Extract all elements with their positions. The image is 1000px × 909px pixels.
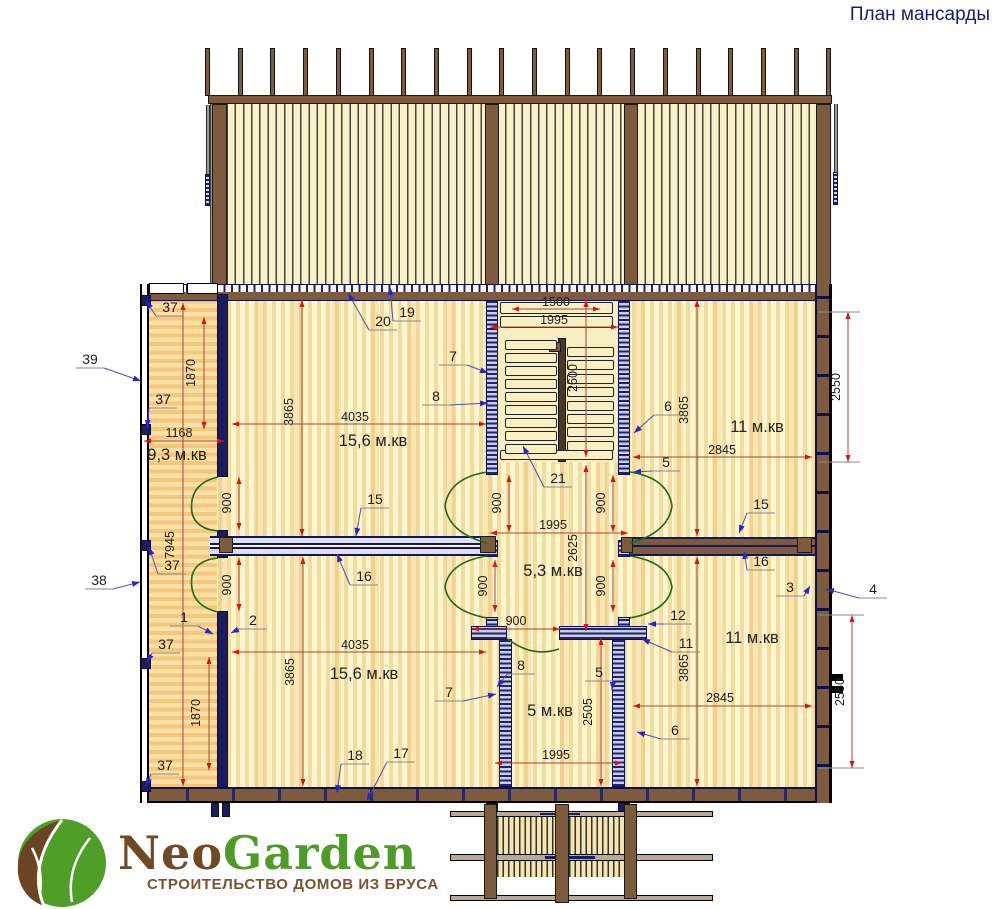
stair-landing-slat bbox=[500, 302, 613, 314]
room-strip-floor bbox=[149, 294, 217, 788]
attic-floor-plan-page: План мансарды bbox=[0, 0, 1000, 909]
rafter-top bbox=[761, 48, 766, 96]
left-wall-post bbox=[141, 295, 151, 306]
stair-tread bbox=[567, 414, 614, 424]
rafter-below bbox=[834, 104, 838, 172]
balcony-rail-dash bbox=[545, 856, 595, 859]
stairwell-right-wall bbox=[618, 300, 630, 475]
roof-post-right bbox=[816, 104, 831, 285]
bottom-outer-wall bbox=[140, 787, 832, 803]
rafter-top bbox=[532, 48, 537, 96]
logo-wordmark: NeoGarden bbox=[118, 826, 417, 880]
left-wall-post bbox=[141, 424, 151, 435]
rafter-top bbox=[336, 48, 341, 96]
rafter-top bbox=[434, 48, 439, 96]
balcony-wall-stub bbox=[222, 803, 230, 817]
right-outer-wall bbox=[815, 284, 832, 803]
stairwell-left-wall bbox=[486, 300, 498, 475]
strip-divider-wall bbox=[217, 611, 228, 788]
rafter-top bbox=[663, 48, 668, 96]
wall-tick-band bbox=[141, 285, 831, 292]
stair-tread bbox=[567, 441, 614, 451]
roof-post-center-left bbox=[485, 104, 499, 285]
top-left-wall-window bbox=[149, 283, 184, 294]
stair-tread bbox=[505, 353, 557, 363]
left-wall-post bbox=[141, 781, 151, 792]
wall-junction-post bbox=[621, 537, 633, 553]
stair-stringer bbox=[558, 338, 566, 462]
rafter-top bbox=[303, 48, 308, 96]
stair-tread bbox=[505, 392, 557, 402]
rafter-top bbox=[826, 48, 831, 96]
roof-boarding-panel bbox=[210, 104, 832, 285]
logo-word-neo: Neo bbox=[118, 826, 223, 880]
rafter-top bbox=[467, 48, 472, 96]
rafter-top bbox=[369, 48, 374, 96]
balcony-wall-stub bbox=[211, 803, 219, 817]
right-wall-tab bbox=[831, 686, 843, 693]
stair-tread bbox=[505, 444, 557, 454]
stair-tread bbox=[505, 340, 557, 350]
stair-tread bbox=[505, 366, 557, 376]
rafter-top bbox=[597, 48, 602, 96]
rafter-top bbox=[238, 48, 243, 96]
logo-tagline: СТРОИТЕЛЬСТВО ДОМОВ ИЗ БРУСА bbox=[147, 876, 439, 893]
rafter-top bbox=[630, 48, 635, 96]
stair-tread bbox=[567, 387, 614, 397]
room5-top-wall bbox=[559, 626, 647, 640]
balcony-post bbox=[484, 804, 497, 899]
rafter-top bbox=[499, 48, 504, 96]
room5-right-wall bbox=[612, 639, 625, 787]
balcony-post bbox=[555, 804, 569, 903]
stair-tread bbox=[505, 431, 557, 441]
rafter-top bbox=[205, 48, 210, 96]
roof-top-beam bbox=[208, 95, 832, 104]
strip-divider-wall bbox=[217, 294, 228, 477]
stair-tread bbox=[567, 401, 614, 411]
wall-junction-post bbox=[480, 536, 496, 553]
roof-post-left bbox=[212, 104, 227, 285]
right-wall-tab bbox=[831, 674, 843, 681]
rafter-top bbox=[270, 48, 275, 96]
top-outer-wall bbox=[140, 284, 832, 301]
room5-top-wall bbox=[471, 626, 507, 640]
middle-wall-left bbox=[210, 536, 487, 556]
middle-wall-right bbox=[630, 537, 815, 556]
rafter-top bbox=[728, 48, 733, 96]
stair-tread bbox=[505, 418, 557, 428]
top-left-wall-window bbox=[187, 283, 218, 294]
logo-word-garden: Garden bbox=[223, 826, 417, 880]
rafter-top bbox=[696, 48, 701, 96]
balcony-baluster-panel bbox=[497, 813, 555, 877]
rafter-top bbox=[401, 48, 406, 96]
stair-tread bbox=[567, 374, 614, 384]
logo-emblem bbox=[12, 818, 112, 908]
roof-post-center-right bbox=[624, 104, 638, 285]
staircase bbox=[497, 300, 618, 462]
balcony-post bbox=[624, 804, 637, 899]
wall-junction-post bbox=[219, 537, 233, 553]
stair-tread bbox=[567, 427, 614, 437]
stair-tread bbox=[505, 405, 557, 415]
stair-tread bbox=[567, 347, 614, 357]
rafter-tip bbox=[833, 172, 838, 205]
rafter-top bbox=[565, 48, 570, 96]
room5-left-wall bbox=[499, 639, 512, 787]
wall-junction-post bbox=[797, 537, 812, 553]
stair-tread bbox=[505, 379, 557, 389]
left-wall-post bbox=[141, 658, 151, 669]
stair-tread bbox=[567, 360, 614, 370]
balcony-baluster-panel bbox=[569, 813, 624, 877]
left-wall-post bbox=[141, 540, 151, 551]
wall-wood-band bbox=[141, 292, 831, 300]
stair-landing-slat bbox=[500, 316, 613, 328]
rafter-top bbox=[794, 48, 799, 96]
